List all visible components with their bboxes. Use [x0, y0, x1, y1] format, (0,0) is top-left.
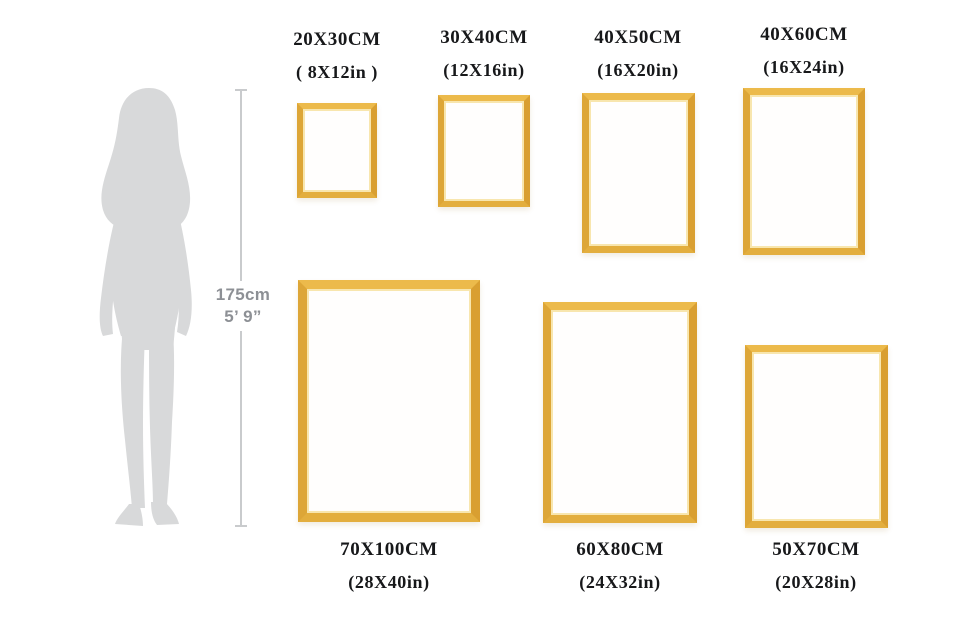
measure-cap-bottom	[235, 525, 247, 527]
size-inch: (24X32in)	[525, 573, 715, 591]
frame-size-label-60x80: 60X80CM (24X32in)	[525, 540, 715, 591]
size-chart: 175cm 5’ 9” 20X30CM ( 8X12in ) 30X40CM (…	[0, 0, 960, 622]
height-label: 175cm 5’ 9”	[201, 281, 285, 331]
size-inch: (28X40in)	[294, 573, 484, 591]
size-cm: 70X100CM	[294, 540, 484, 559]
size-cm: 50X70CM	[721, 540, 911, 559]
size-inch: (20X28in)	[721, 573, 911, 591]
frame-20x30cm	[297, 103, 377, 198]
frame-50x70cm	[745, 345, 888, 528]
size-cm: 40X60CM	[709, 25, 899, 44]
measure-cap-top	[235, 89, 247, 91]
frame-40x60cm	[743, 88, 865, 255]
size-cm: 40X50CM	[543, 28, 733, 47]
height-ft: 5’ 9”	[224, 307, 261, 326]
size-inch: (16X20in)	[543, 61, 733, 79]
size-cm: 60X80CM	[525, 540, 715, 559]
frame-70x100cm	[298, 280, 480, 522]
person-silhouette-image	[84, 84, 210, 530]
frame-size-label-50x70: 50X70CM (20X28in)	[721, 540, 911, 591]
frame-size-label-40x50: 40X50CM (16X20in)	[543, 28, 733, 79]
frame-size-label-70x100: 70X100CM (28X40in)	[294, 540, 484, 591]
frame-size-label-40x60: 40X60CM (16X24in)	[709, 25, 899, 76]
frame-30x40cm	[438, 95, 530, 207]
frame-40x50cm	[582, 93, 695, 253]
size-inch: (16X24in)	[709, 58, 899, 76]
frame-60x80cm	[543, 302, 697, 523]
height-cm: 175cm	[216, 285, 270, 304]
